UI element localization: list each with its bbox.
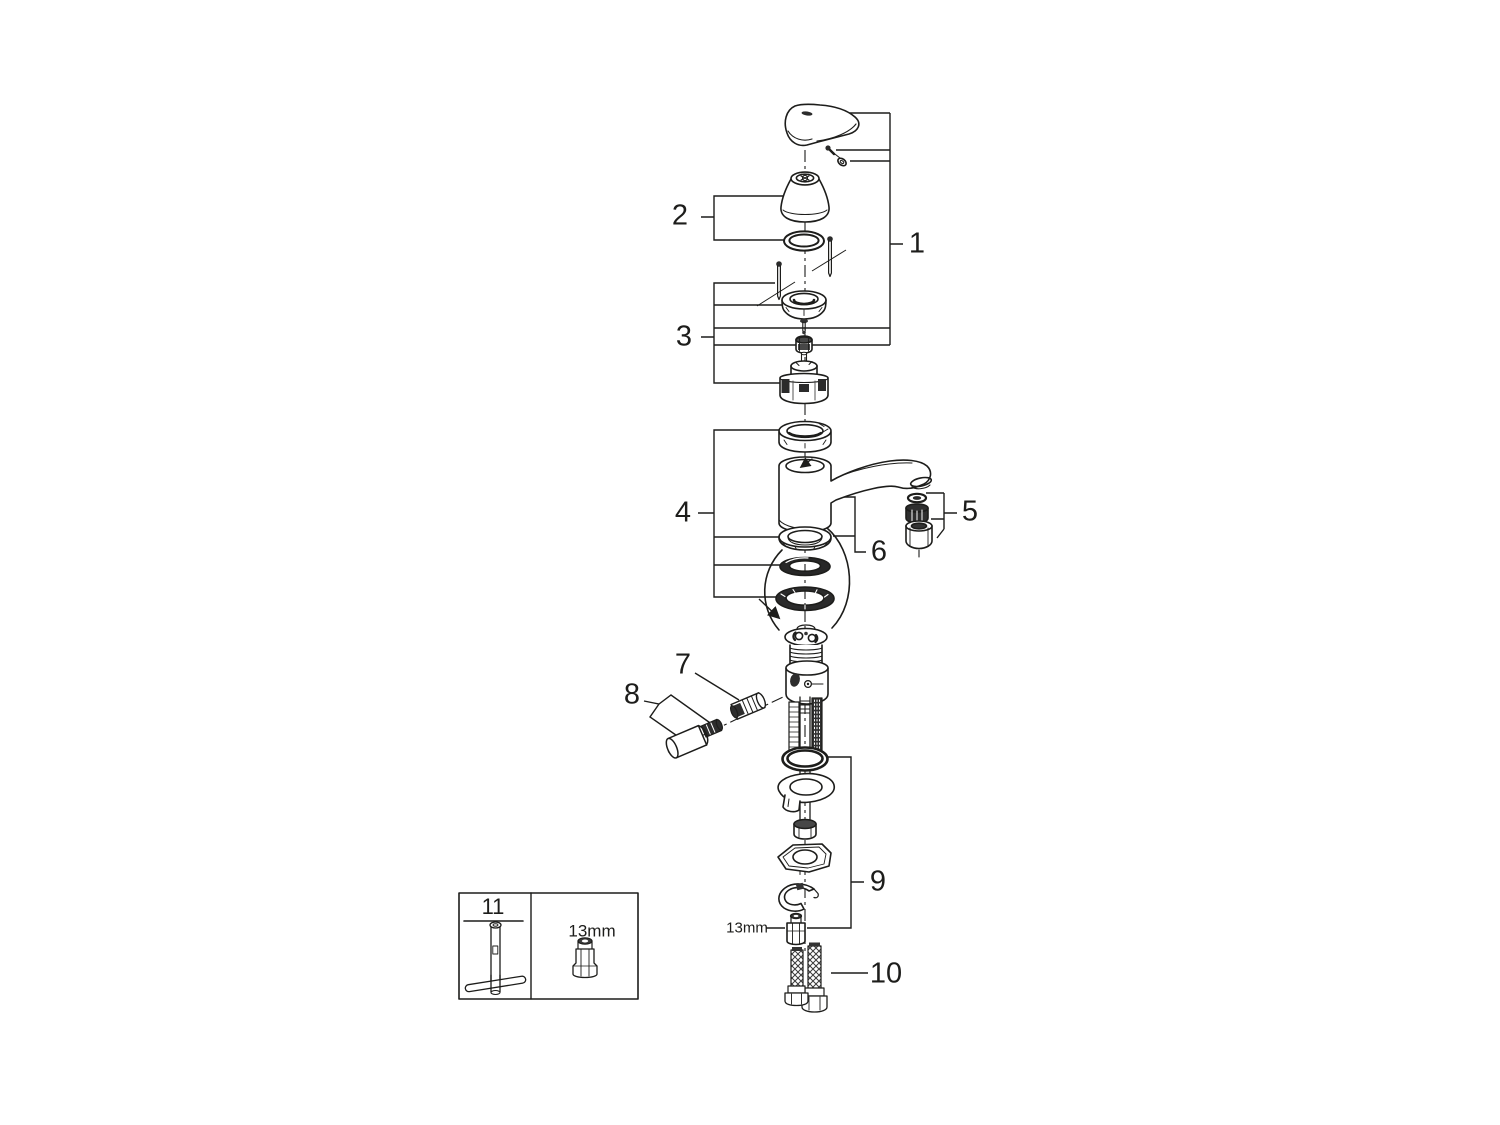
legend-socket-size-label: 13mm xyxy=(568,923,615,940)
part-check-valve xyxy=(728,692,767,721)
part-adapter-13mm xyxy=(787,913,805,944)
callout-label-2: 2 xyxy=(672,202,688,231)
part-shank-nut xyxy=(794,820,816,840)
part-plug-cap xyxy=(664,724,710,760)
adapter-size-label: 13mm xyxy=(726,921,768,936)
part-c-clip xyxy=(779,883,818,911)
callout-label-7: 7 xyxy=(675,651,691,680)
part-cap-oring xyxy=(784,231,824,250)
part-handle-screw xyxy=(825,145,847,167)
part-mounting-plate xyxy=(778,844,831,875)
callout-label-5: 5 xyxy=(962,498,978,527)
callout-label-1: 1 xyxy=(909,230,925,259)
part-stop-insert xyxy=(701,718,724,737)
leader-7 xyxy=(695,673,739,700)
part-slip-ring xyxy=(779,527,831,550)
part-dome-cap xyxy=(781,172,829,222)
leader-8 xyxy=(644,695,713,740)
callout-label-9: 9 xyxy=(870,868,886,897)
part-escutcheon-flange xyxy=(782,291,826,319)
callout-label-3: 3 xyxy=(676,323,692,352)
callout-label-4: 4 xyxy=(675,499,691,528)
part-flex-hoses xyxy=(785,943,827,1013)
callout-label-8: 8 xyxy=(624,681,640,710)
callout-label-10: 10 xyxy=(870,960,902,989)
part-small-screw xyxy=(800,319,808,335)
callout-label-6: 6 xyxy=(871,538,887,567)
exploded-parts-diagram: 1 2 3 4 5 6 7 8 9 10 11 13mm 13mm xyxy=(0,0,1500,1125)
part-lever-handle xyxy=(785,104,859,145)
part-aerator-set xyxy=(906,494,932,557)
diagram-linework xyxy=(0,0,1500,1125)
part-mounting-ring xyxy=(779,422,831,453)
part-cartridge xyxy=(780,352,828,403)
part-base-oring xyxy=(783,748,828,771)
part-bushing-nut xyxy=(796,336,812,353)
part-horseshoe-washer xyxy=(778,774,834,812)
part-lower-body xyxy=(785,625,828,704)
bracket-3 xyxy=(701,283,789,383)
legend-callout-label-11: 11 xyxy=(482,896,505,918)
bracket-4 xyxy=(698,430,789,597)
bracket-6 xyxy=(833,497,866,552)
bracket-2 xyxy=(701,196,788,240)
